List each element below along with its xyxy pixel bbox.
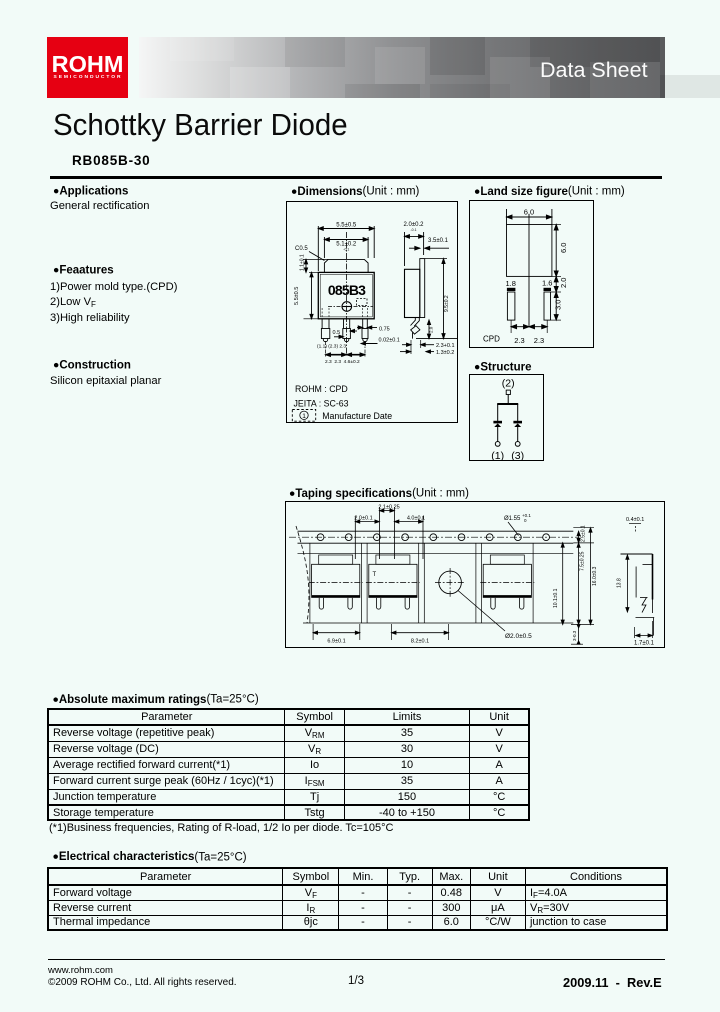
svg-text:Manufacture Date: Manufacture Date bbox=[322, 411, 392, 421]
svg-text:6.0: 6.0 bbox=[559, 243, 568, 253]
svg-text:3.0: 3.0 bbox=[553, 300, 562, 310]
svg-text:Ø1.55: Ø1.55 bbox=[504, 516, 521, 522]
svg-text:085B3: 085B3 bbox=[327, 282, 365, 298]
svg-text:2.3: 2.3 bbox=[514, 336, 524, 345]
svg-text:10.1±0.1: 10.1±0.1 bbox=[553, 588, 559, 608]
svg-text:(3): (3) bbox=[511, 450, 524, 461]
svg-text:6.9±0.1: 6.9±0.1 bbox=[327, 639, 345, 645]
svg-text:9.5±0.2: 9.5±0.2 bbox=[444, 295, 450, 312]
svg-text:(1): (1) bbox=[491, 450, 504, 461]
svg-text:3.5±0.1: 3.5±0.1 bbox=[428, 238, 449, 244]
svg-text:ROHM : CPD: ROHM : CPD bbox=[295, 384, 348, 394]
svg-text:0.4±0.1: 0.4±0.1 bbox=[626, 517, 644, 523]
svg-text:2.5±0.1: 2.5±0.1 bbox=[580, 525, 586, 542]
svg-text:3-0.3: 3-0.3 bbox=[572, 630, 577, 641]
svg-text:(1.1) (2.3) 2.3: (1.1) (2.3) 2.3 bbox=[317, 343, 346, 349]
svg-text:2.3: 2.3 bbox=[533, 336, 543, 345]
svg-text:5.5±0.5: 5.5±0.5 bbox=[294, 286, 300, 304]
svg-text:1.3±0.2: 1.3±0.2 bbox=[436, 350, 454, 356]
svg-text:(2): (2) bbox=[502, 377, 515, 389]
svg-text:7.5±0.25: 7.5±0.25 bbox=[579, 551, 585, 571]
svg-text:2.3 2.3 4.6±0.2: 2.3 2.3 4.6±0.2 bbox=[325, 359, 360, 365]
svg-text:1.6: 1.6 bbox=[542, 279, 552, 288]
svg-text:CPD: CPD bbox=[483, 335, 500, 344]
svg-text:4.0±0.1: 4.0±0.1 bbox=[406, 515, 424, 521]
svg-text:2.0: 2.0 bbox=[428, 326, 433, 333]
svg-text:1.8: 1.8 bbox=[505, 279, 515, 288]
svg-text:2.3+0.1: 2.3+0.1 bbox=[436, 343, 455, 349]
svg-text:2.1±0.25: 2.1±0.25 bbox=[378, 504, 399, 510]
svg-text:1.1±0.1: 1.1±0.1 bbox=[299, 254, 305, 271]
svg-text:5.5±0.5: 5.5±0.5 bbox=[336, 222, 357, 228]
svg-text:Ø2.0±0.5: Ø2.0±0.5 bbox=[505, 633, 532, 640]
svg-text:0.02±0.1: 0.02±0.1 bbox=[378, 337, 399, 343]
svg-text:1: 1 bbox=[302, 413, 306, 420]
svg-text:C0.5: C0.5 bbox=[295, 246, 308, 252]
svg-text:1.7±0.1: 1.7±0.1 bbox=[634, 641, 655, 647]
svg-text:JEITA : SC-63: JEITA : SC-63 bbox=[293, 398, 348, 408]
svg-text:-0.1: -0.1 bbox=[410, 228, 416, 232]
svg-text:8.2±0.1: 8.2±0.1 bbox=[410, 639, 428, 645]
svg-text:0.75: 0.75 bbox=[379, 326, 390, 332]
svg-text:2.0±0.1: 2.0±0.1 bbox=[354, 515, 372, 521]
svg-text:2.0: 2.0 bbox=[559, 278, 568, 288]
svg-text:0: 0 bbox=[524, 518, 527, 523]
svg-text:16.0±0.3: 16.0±0.3 bbox=[592, 566, 598, 586]
svg-text:13.8: 13.8 bbox=[616, 578, 622, 588]
svg-text:6.0: 6.0 bbox=[523, 208, 533, 217]
svg-text:T: T bbox=[372, 572, 376, 578]
